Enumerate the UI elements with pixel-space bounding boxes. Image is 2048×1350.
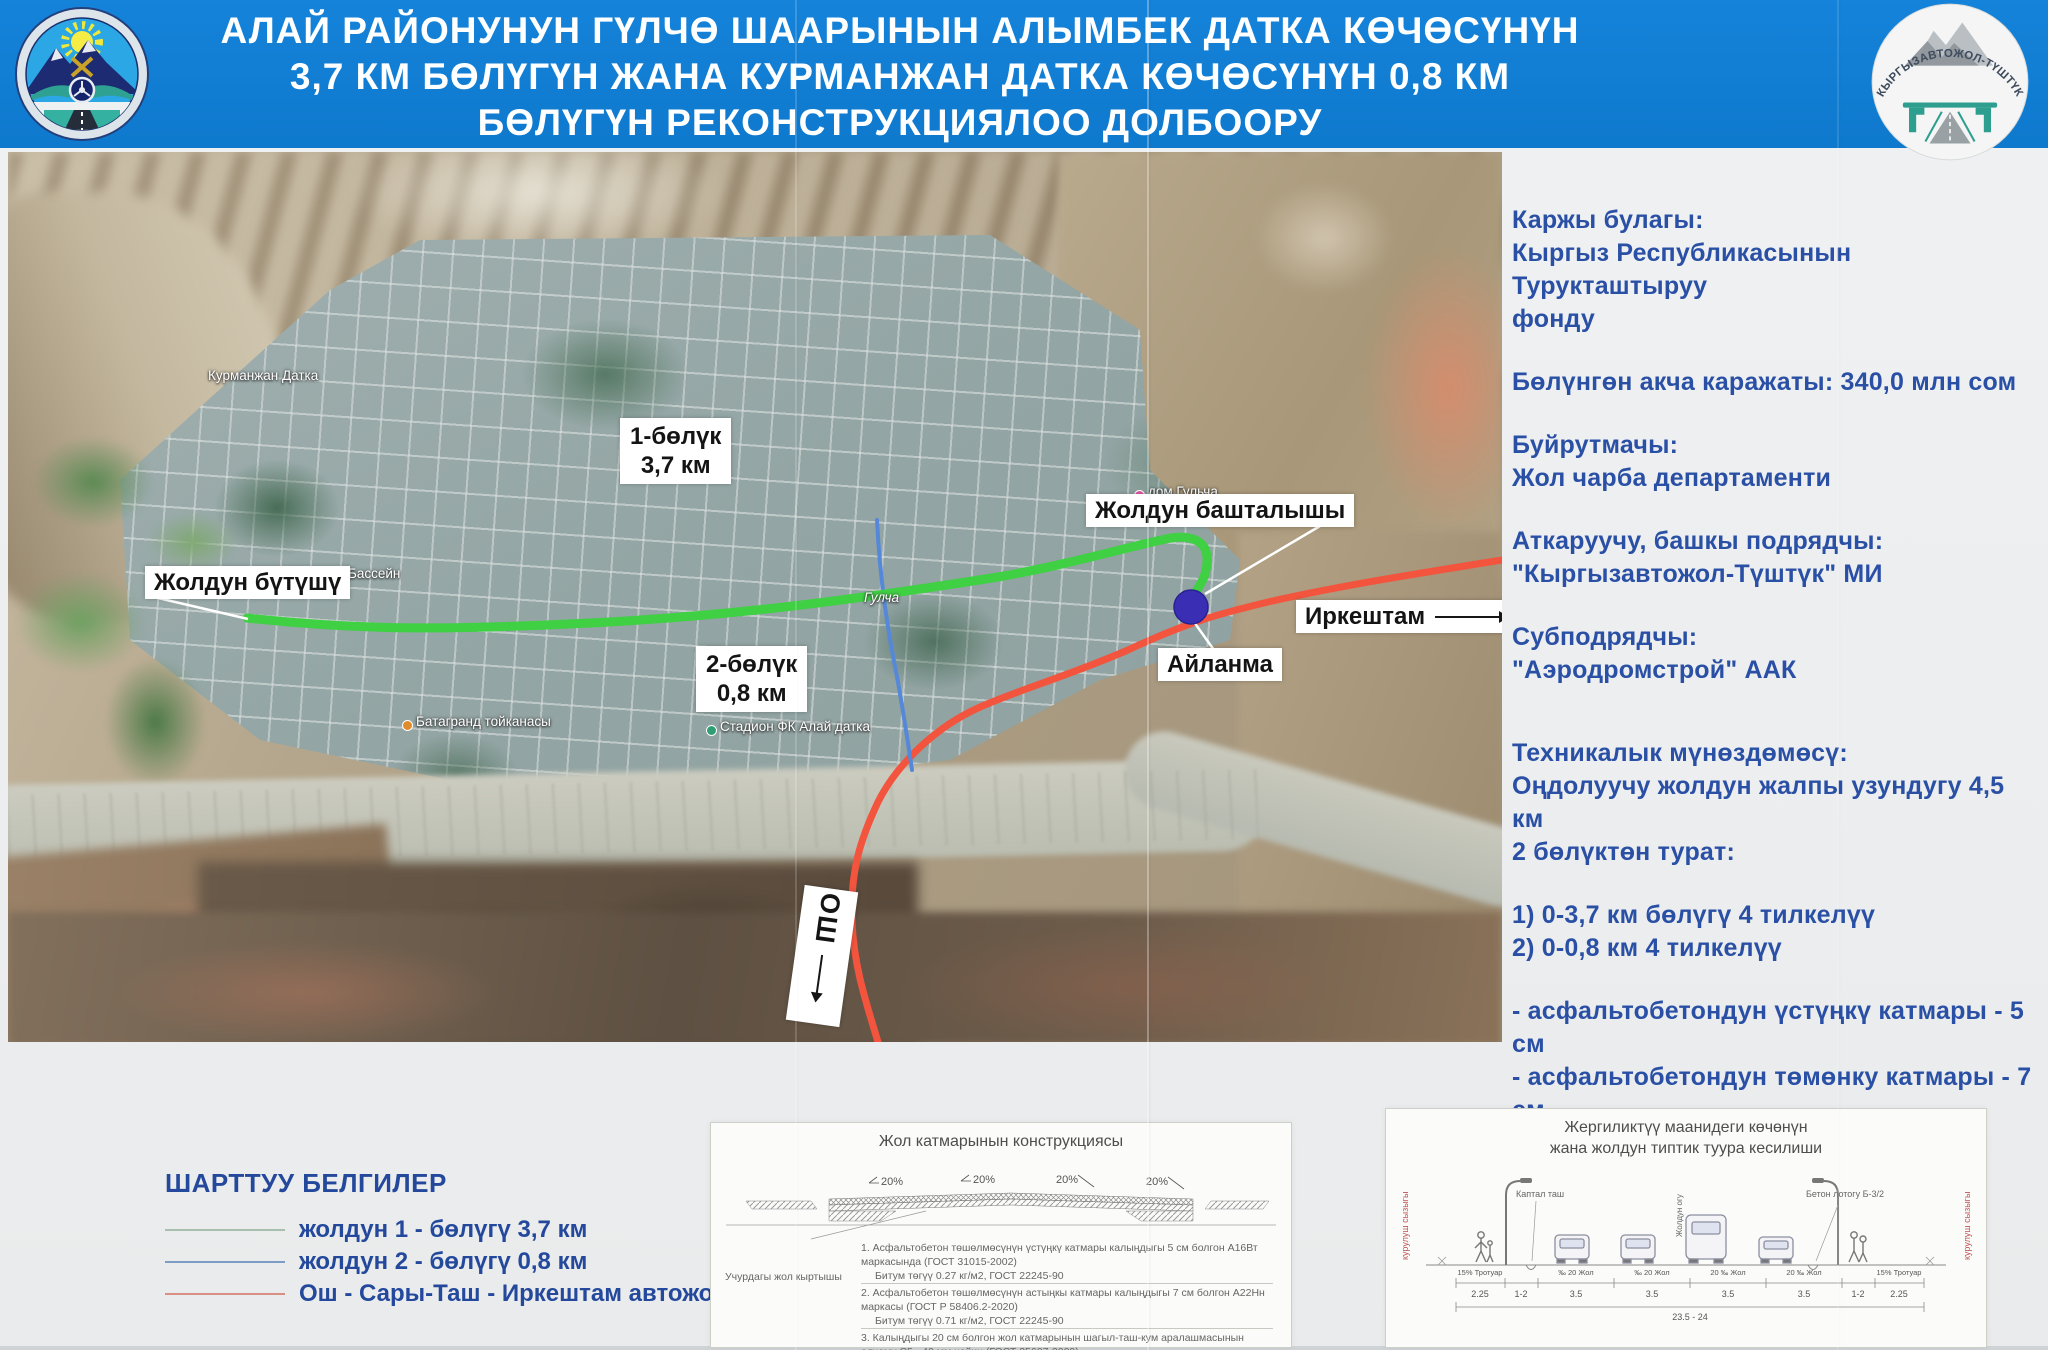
- restaurant-poi-icon: [402, 720, 413, 731]
- svg-text:20 ‰ Жол: 20 ‰ Жол: [1710, 1268, 1745, 1277]
- south-arrow-icon: [815, 955, 823, 1001]
- project-billboard: АЛАЙ РАЙОНУНУН ГҮЛЧӨ ШААРЫНЫН АЛЫМБЕК ДА…: [0, 0, 2048, 1350]
- building-line-label-right: курулуш сызыгы: [1962, 1192, 1972, 1260]
- van-icon: [1686, 1215, 1726, 1263]
- route-section-2: [877, 520, 912, 770]
- existing-road-label: Учурдагы жол кыртышы: [725, 1271, 845, 1283]
- slope-label: 20%: [1146, 1176, 1168, 1188]
- svg-text:1-2: 1-2: [1851, 1289, 1864, 1299]
- svg-text:3.5: 3.5: [1570, 1289, 1583, 1299]
- total-width-value: 23.5 - 24: [1672, 1312, 1708, 1322]
- road-end-label: Жолдун бүтүшү: [145, 566, 350, 599]
- car-icon: [1621, 1235, 1655, 1263]
- header-banner: АЛАЙ РАЙОНУНУН ГҮЛЧӨ ШААРЫНЫН АЛЫМБЕК ДА…: [0, 0, 2048, 148]
- contractor-block: Аткаруучу, башкы подрядчы: "Кыргызавтожо…: [1512, 525, 2042, 591]
- gutter-label: Бетон лотогу Б-3/2: [1806, 1189, 1884, 1199]
- construction-notes: 1. Асфальтобетон төшөлмөсүнүн үстүңкү ка…: [861, 1241, 1273, 1350]
- panel-seam: [795, 0, 797, 1350]
- cross-section-diagram: Жергиликтүү маанидеги көчөнүн жана жолду…: [1385, 1108, 1987, 1348]
- svg-text:‰ 20 Жол: ‰ 20 Жол: [1558, 1268, 1593, 1277]
- slope-label: 20%: [1056, 1174, 1078, 1186]
- legend-item-section1: жолдун 1 - бөлүгү 3,7 км: [165, 1215, 741, 1245]
- legend-line-blue-icon: [165, 1261, 285, 1263]
- subcontractor-block: Субподрядчы: "Аэродромстрой" ААК: [1512, 621, 2042, 687]
- pedestrian-icon: [1849, 1232, 1867, 1262]
- road-layers-diagram: Жол катмарынын конструкциясы 20%: [710, 1122, 1292, 1348]
- lane-labels: 15% Тротуар ‰ 20 Жол ‰ 20 Жол 20 ‰ Жол 2…: [1458, 1268, 1922, 1277]
- panel-seam: [1837, 0, 1839, 1350]
- road-layers-title: Жол катмарынын конструкциясы: [711, 1131, 1291, 1152]
- title-line-1: АЛАЙ РАЙОНУНУН ГҮЛЧӨ ШААРЫНЫН АЛЫМБЕК ДА…: [120, 8, 1680, 54]
- svg-text:3.5: 3.5: [1646, 1289, 1659, 1299]
- kyrgyzavtozhol-tushtuk-logo-icon: КЫРГЫЗАВТОЖОЛ-ТҮШТҮК: [1868, 0, 2032, 164]
- project-info-panel: Каржы булагы: Кыргыз Республикасынын Тур…: [1512, 204, 2042, 1256]
- cross-section-drawing: Каптал таш Бетон лотогу Б-3/2 Жолдун огу…: [1386, 1165, 1986, 1325]
- car-icon: [1555, 1235, 1589, 1263]
- map-legend: ШАРТТУУ БЕЛГИЛЕР жолдун 1 - бөлүгү 3,7 к…: [165, 1168, 741, 1309]
- section2-label: 2-бөлүк 0,8 км: [696, 646, 807, 712]
- total-dimension-line: [1456, 1302, 1924, 1312]
- road-start-label: Жолдун башталышы: [1086, 494, 1354, 527]
- svg-text:1-2: 1-2: [1514, 1289, 1527, 1299]
- curb-label: Каптал таш: [1516, 1189, 1564, 1199]
- poi-label: Курманжан Датка: [208, 368, 318, 383]
- car-icon: [1759, 1237, 1793, 1263]
- svg-text:2.25: 2.25: [1471, 1289, 1489, 1299]
- slope-label: 20%: [881, 1176, 903, 1188]
- svg-text:15% Тротуар: 15% Тротуар: [1877, 1268, 1922, 1277]
- dimension-line: [1456, 1278, 1924, 1288]
- svg-text:3.5: 3.5: [1798, 1289, 1811, 1299]
- title-line-3: БӨЛҮГҮН РЕКОНСТРУКЦИЯЛОО ДОЛБООРУ: [120, 100, 1680, 146]
- legend-item-section2: жолдун 2 - бөлүгү 0,8 км: [165, 1247, 741, 1277]
- pedestrian-icon: [1475, 1232, 1493, 1262]
- legend-title: ШАРТТУУ БЕЛГИЛЕР: [165, 1168, 741, 1199]
- cross-section-title: Жергиликтүү маанидеги көчөнүн жана жолду…: [1386, 1117, 1986, 1159]
- route-section-1: [247, 537, 1207, 628]
- project-title: АЛАЙ РАЙОНУНУН ГҮЛЧӨ ШААРЫНЫН АЛЫМБЕК ДА…: [120, 8, 1680, 146]
- client-block: Буйрутмачы: Жол чарба департаменти: [1512, 429, 2042, 495]
- legend-item-highway: Ош - Сары-Таш - Иркештам автожолу: [165, 1279, 741, 1309]
- satellite-map: 1-бөлүк 3,7 км 2-бөлүк 0,8 км Жолдун бүт…: [8, 152, 1502, 1042]
- budget-block: Бөлүнгөн акча каражаты: 340,0 млн сом: [1512, 366, 2042, 399]
- stadium-poi-icon: [706, 725, 717, 736]
- legend-line-green-icon: [165, 1229, 285, 1231]
- road-axis-label: Жолдун огу: [1675, 1194, 1684, 1237]
- svg-text:3.5: 3.5: [1722, 1289, 1735, 1299]
- poi-label: Батагранд тойканасы: [416, 714, 551, 729]
- funding-source-block: Каржы булагы: Кыргыз Республикасынын Тур…: [1512, 204, 2042, 336]
- irkeshtam-direction-label: Иркештам: [1296, 600, 1502, 633]
- section1-label: 1-бөлүк 3,7 км: [620, 418, 731, 484]
- svg-text:15% Тротуар: 15% Тротуар: [1458, 1268, 1503, 1277]
- roundabout-label: Айланма: [1158, 648, 1282, 681]
- dimension-values: 2.25 1-2 3.5 3.5 3.5 3.5 1-2 2.25: [1471, 1289, 1908, 1299]
- technical-specs-block: Техникалык мүнөздөмөсү: Оңдолуучу жолдун…: [1512, 737, 2042, 869]
- poi-label: Бассейн: [348, 566, 400, 581]
- roundabout-marker: [1174, 590, 1208, 624]
- svg-text:20 ‰ Жол: 20 ‰ Жол: [1786, 1268, 1821, 1277]
- building-line-label-left: курулуш сызыгы: [1400, 1192, 1410, 1260]
- sections-block: 1) 0-3,7 км бөлүгү 4 тилкелүү 2) 0-0,8 к…: [1512, 899, 2042, 965]
- road-layers-drawing: 20% 20% 20% 20%: [711, 1155, 1291, 1245]
- poi-label: Гулча: [864, 590, 899, 605]
- title-line-2: 3,7 КМ БӨЛҮГҮН ЖАНА КУРМАНЖАН ДАТКА КӨЧӨ…: [120, 54, 1680, 100]
- legend-line-red-icon: [165, 1293, 285, 1295]
- svg-text:‰ 20 Жол: ‰ 20 Жол: [1634, 1268, 1669, 1277]
- svg-text:2.25: 2.25: [1890, 1289, 1908, 1299]
- slope-label: 20%: [973, 1174, 995, 1186]
- east-arrow-icon: [1435, 616, 1502, 618]
- panel-seam: [1147, 0, 1149, 1350]
